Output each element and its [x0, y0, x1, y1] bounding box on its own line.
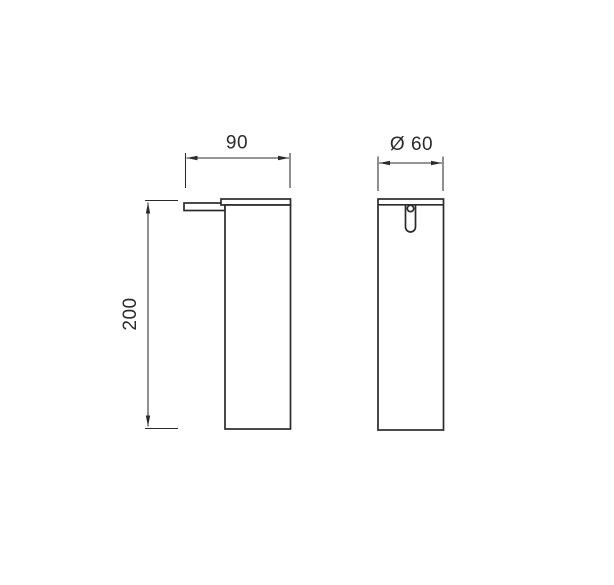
arrow-right-icon: [278, 156, 289, 160]
side-view-lid: [221, 199, 291, 205]
arrow-left-icon: [379, 161, 390, 165]
side-view-body: [225, 205, 291, 429]
arrow-up-icon: [146, 203, 150, 214]
front-view: [378, 199, 444, 430]
arrow-down-icon: [146, 416, 150, 427]
dimension-height-label: 200: [120, 297, 141, 330]
side-view: [184, 199, 291, 429]
front-view-body: [378, 199, 444, 430]
technical-drawing-canvas: 90 Ø 60 200: [0, 0, 614, 585]
dimension-width: 90: [186, 133, 291, 189]
dimension-diameter-label: Ø 60: [390, 134, 433, 155]
dimension-diameter: Ø 60: [378, 134, 443, 191]
arrow-left-icon: [187, 156, 198, 160]
dimension-height: 200: [120, 201, 178, 429]
dimension-width-label: 90: [226, 133, 248, 154]
arrow-right-icon: [431, 161, 442, 165]
side-view-pump-spout: [184, 203, 225, 211]
dimension-drawing: 90 Ø 60 200: [0, 0, 614, 585]
